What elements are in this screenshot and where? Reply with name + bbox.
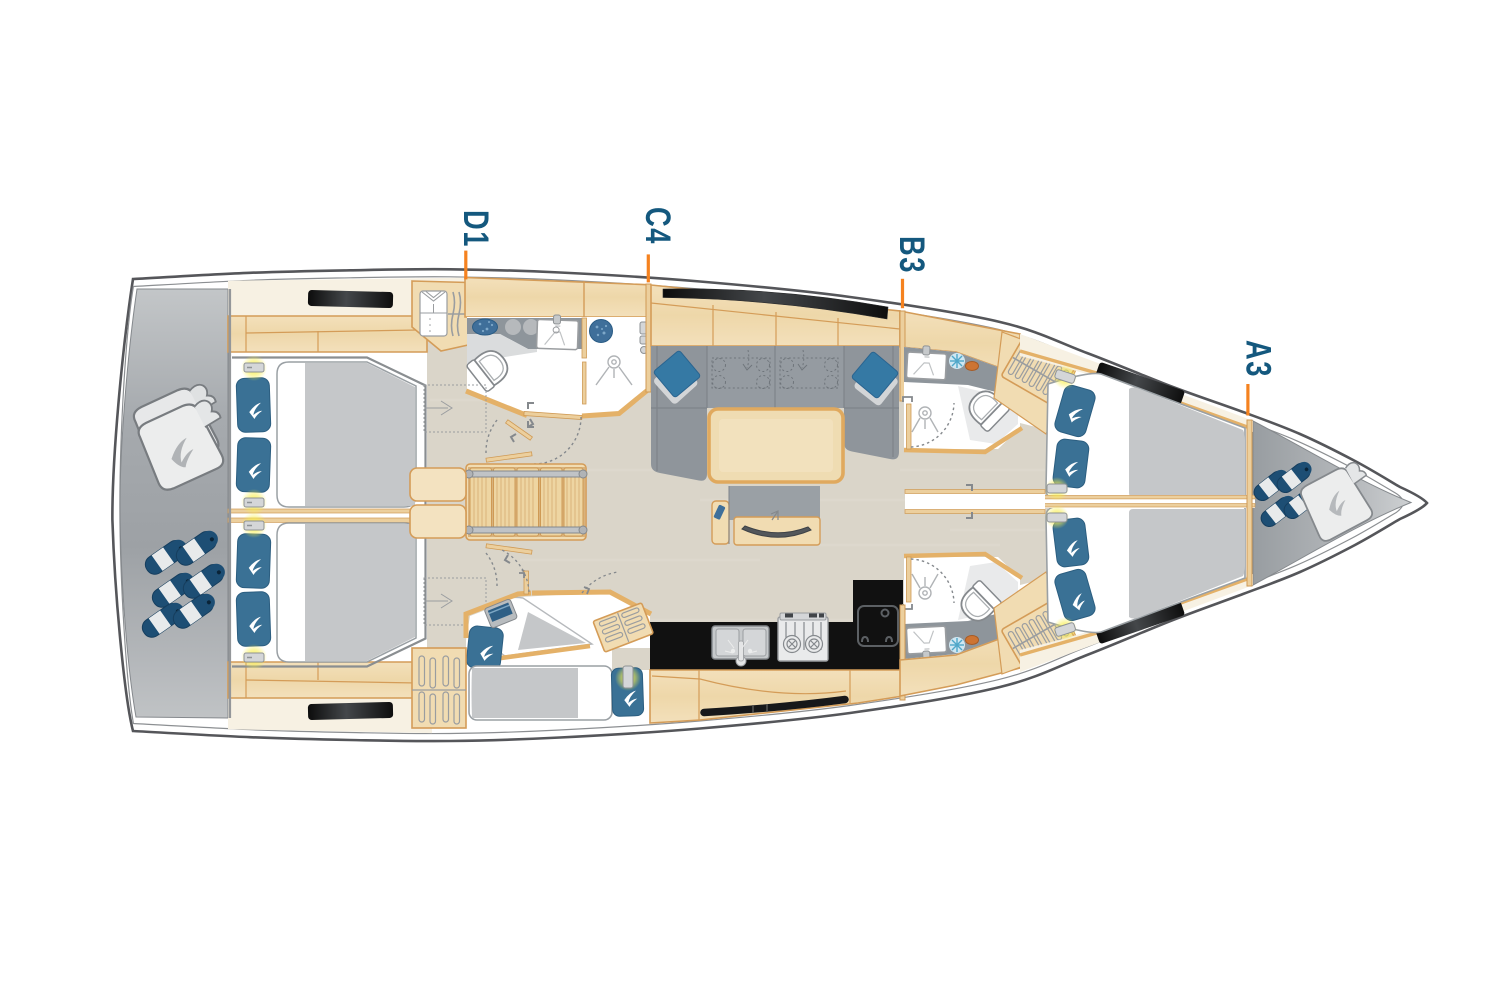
svg-text:C4: C4 <box>638 207 677 245</box>
svg-text:D1: D1 <box>456 210 495 248</box>
svg-text:B3: B3 <box>892 236 931 274</box>
svg-text:A3: A3 <box>1239 340 1278 378</box>
